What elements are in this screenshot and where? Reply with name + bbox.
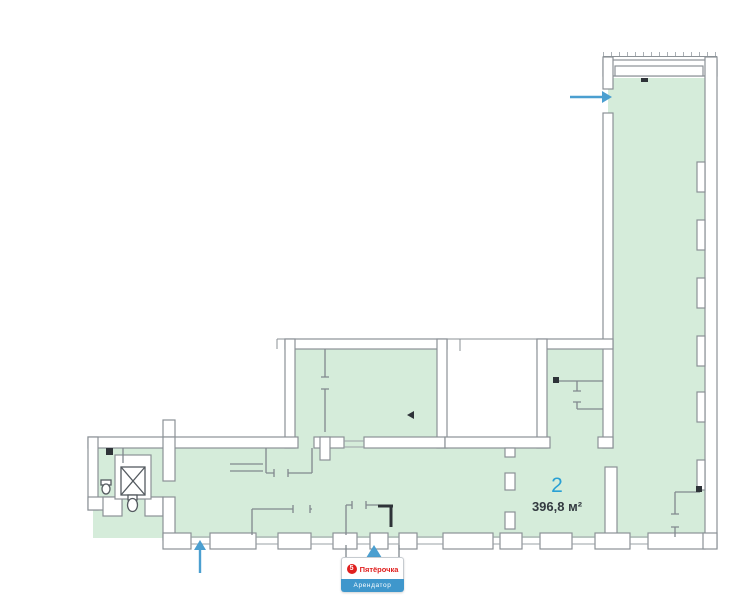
- toilet-icon: [128, 495, 138, 512]
- entrance-arrow-right-icon: [570, 91, 612, 103]
- floor-area-room-right: [541, 344, 611, 442]
- unit-number-label: 2: [551, 474, 563, 497]
- entrance-arrow-up-icon: [194, 540, 206, 573]
- floor-plan-drawing: 2 396,8 м²: [0, 0, 755, 600]
- tenant-badge[interactable]: 5 Пятёрочка Арендатор: [341, 557, 404, 592]
- tenant-role-label: Арендатор: [341, 579, 404, 592]
- sink-icon: [101, 480, 111, 494]
- unit-area-label: 396,8 м²: [532, 499, 583, 514]
- floor-area-room-left: [290, 344, 440, 442]
- tenant-brand-name: Пятёрочка: [360, 565, 399, 574]
- tenant-brand-row: 5 Пятёрочка: [341, 557, 404, 579]
- floor-plan-page: 2 396,8 м² 5 Пятёрочка Арендатор: [0, 0, 755, 600]
- elevator-icon: [121, 467, 145, 495]
- pyaterochka-logo-icon: 5: [347, 564, 357, 574]
